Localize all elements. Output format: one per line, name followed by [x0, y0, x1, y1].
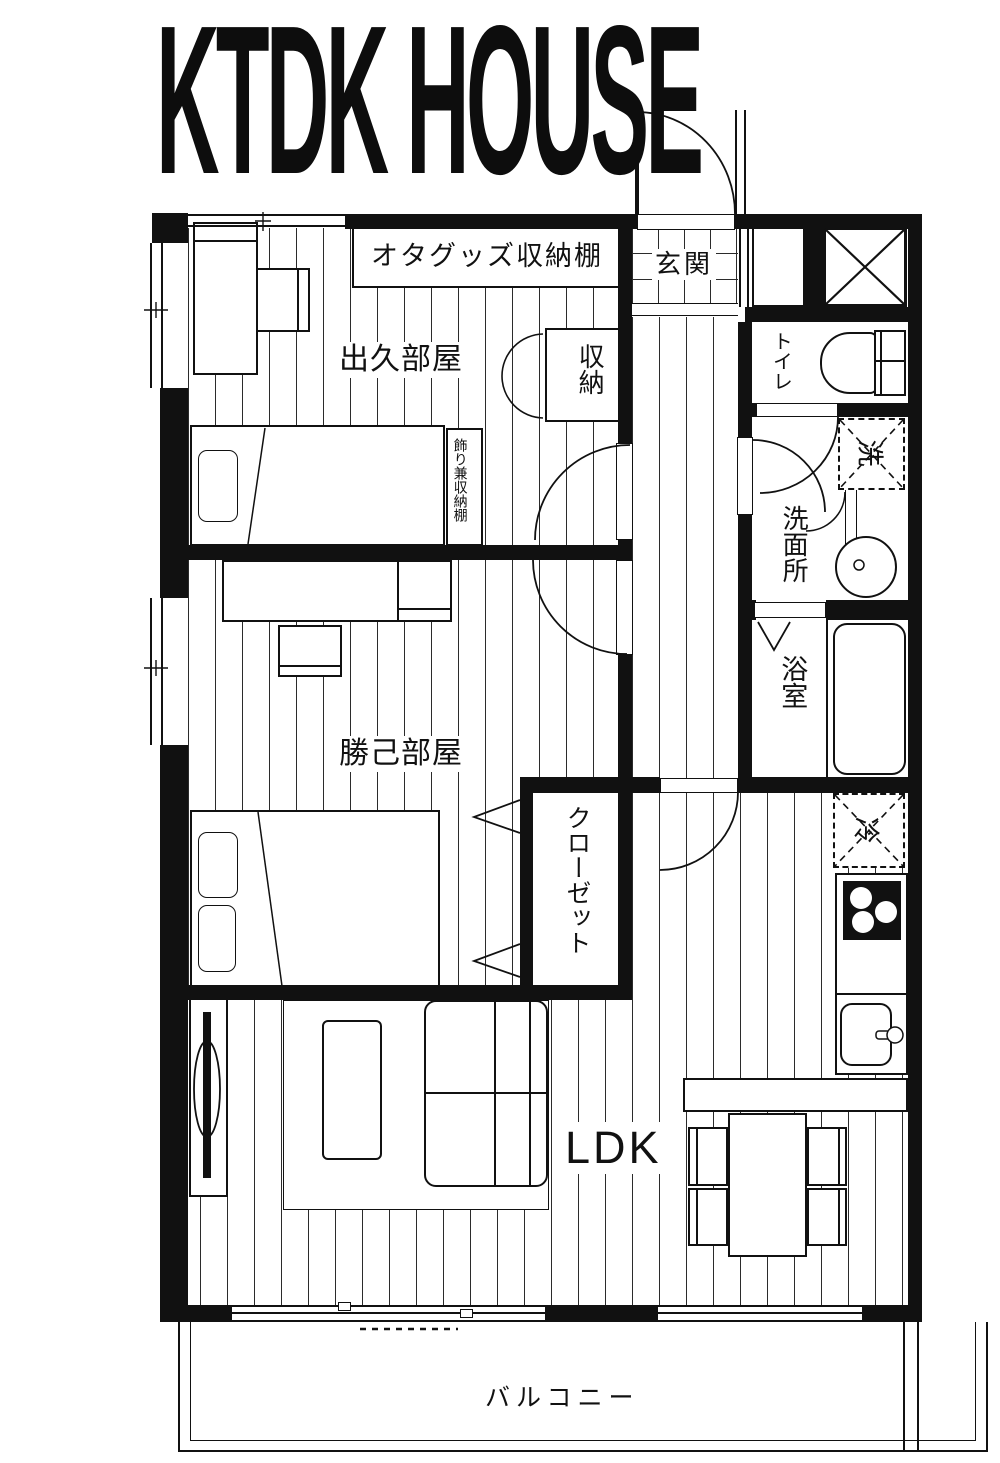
- katsuki-pillow-1: [198, 832, 238, 898]
- wall-closet-left: [520, 793, 533, 985]
- window-deku-line-1: [150, 243, 152, 388]
- washroom-door-arc: [753, 440, 825, 512]
- label-deku-room: 出久部屋: [336, 342, 466, 378]
- wall-toilet-div-r: [838, 403, 908, 417]
- window-top-line-2: [160, 225, 345, 227]
- chair-3-back: [838, 1129, 840, 1184]
- coffee-table: [322, 1020, 382, 1160]
- page-title: KTDK HOUSE: [156, 0, 700, 206]
- katsuki-desk-divider: [397, 562, 399, 620]
- sliding-right-mid-line: [658, 1312, 862, 1314]
- wall-katsuki-bottom: [160, 985, 632, 1000]
- hallway-floor: [632, 317, 738, 779]
- bath-divider: [826, 620, 828, 777]
- katsuki-desk: [222, 560, 452, 622]
- deku-desk-line: [195, 240, 256, 242]
- window-katsuki-line-1: [150, 598, 152, 745]
- wall-hall-a: [618, 228, 632, 445]
- dining-chair-4: [807, 1188, 847, 1246]
- label-washer: 洗: [854, 440, 884, 467]
- dining-table: [728, 1113, 807, 1257]
- wall-bottom-c: [862, 1305, 922, 1322]
- toilet-door-leaf: [756, 403, 838, 417]
- genkan-step: [632, 303, 738, 316]
- label-ota-shelf: オタグッズ収納棚: [368, 240, 606, 272]
- shaft-box: [823, 227, 907, 307]
- wall-toilet-div-l: [738, 403, 757, 417]
- wall-closet-top: [520, 777, 660, 793]
- wall-hall-c: [618, 650, 632, 1000]
- label-storage: 収納: [572, 342, 607, 396]
- label-katsuki-room: 勝己部屋: [336, 736, 466, 772]
- balcony-inner-rail: [190, 1322, 976, 1441]
- label-ldk: LDK: [562, 1122, 665, 1174]
- basin-drain: [854, 560, 864, 570]
- dining-chair-3: [807, 1127, 847, 1186]
- porch-wall-line-2: [744, 110, 746, 214]
- chair-4-back: [838, 1190, 840, 1244]
- wall-bath-left: [738, 620, 752, 777]
- window-deku-line-2: [161, 243, 163, 388]
- label-closet: クローゼット: [560, 804, 594, 956]
- toilet-tank-line-h: [876, 360, 904, 362]
- tv-stand: [189, 995, 228, 1197]
- shoe-cabinet: [752, 227, 805, 307]
- genkan-divider-line-1: [739, 229, 741, 307]
- katsuki-pillow-2: [198, 905, 236, 972]
- balcony-partition-1: [903, 1322, 905, 1450]
- toilet-tank: [874, 330, 906, 396]
- window-tick-deku: [144, 302, 168, 318]
- kitchen-peninsula: [683, 1078, 908, 1112]
- katsuki-desk-shelf-line: [399, 608, 450, 610]
- wall-toilet-top: [745, 307, 922, 322]
- chair-1-back: [696, 1129, 698, 1184]
- wall-top-right: [735, 214, 922, 229]
- ldk-door-leaf: [660, 778, 738, 793]
- label-bathroom: 浴室: [774, 654, 810, 710]
- porch-wall-line-1: [735, 110, 737, 214]
- dining-chair-1: [688, 1127, 728, 1186]
- sliding-handle-1: [338, 1302, 351, 1311]
- label-washroom: 洗面所: [776, 504, 811, 584]
- label-display-shelf: 飾り兼収納棚: [452, 438, 468, 522]
- counter-divider: [837, 993, 906, 995]
- wall-wash-left-a: [738, 322, 752, 437]
- wall-shaft-left: [805, 227, 823, 307]
- washer-hatch-arc: [806, 492, 845, 531]
- window-tick-katsuki: [144, 660, 168, 676]
- label-genkan: 玄関: [652, 249, 716, 280]
- bathtub: [833, 623, 906, 775]
- sofa-cushion-split: [426, 1092, 546, 1094]
- wall-bath-top-r: [826, 600, 922, 620]
- wall-left-b: [160, 745, 188, 1322]
- katsuki-chair-back: [280, 665, 340, 667]
- label-balcony: バルコニー: [482, 1383, 643, 1413]
- balcony-partition-2: [917, 1322, 919, 1450]
- wall-wash-left-b: [738, 514, 752, 602]
- kitchen-sink: [840, 1003, 892, 1066]
- deku-chair: [256, 268, 310, 332]
- deku-pillow: [198, 450, 238, 522]
- katsuki-chair: [278, 625, 342, 677]
- washroom-door-leaf: [737, 437, 753, 515]
- floor-plan: KTDK HOUSE: [0, 0, 1000, 1463]
- wall-hall-b: [618, 538, 632, 562]
- wall-bottom-a: [160, 1305, 232, 1322]
- toilet-door-arc: [760, 417, 838, 493]
- window-katsuki-line-2: [161, 598, 163, 745]
- washer-hatch-jamb: [845, 490, 857, 553]
- wall-bottom-b: [545, 1305, 658, 1322]
- toilet-bowl: [820, 332, 878, 394]
- sliding-handle-2: [460, 1309, 473, 1318]
- sliding-left-mid-line: [232, 1312, 545, 1314]
- wall-kitchen-top: [738, 777, 922, 793]
- genkan-divider-line-2: [747, 229, 749, 307]
- deku-door-leaf: [616, 443, 633, 540]
- toilet-tank-line-v: [880, 332, 882, 394]
- wall-right: [908, 228, 922, 1322]
- chair-2-back: [696, 1190, 698, 1244]
- katsuki-door-leaf: [616, 560, 633, 655]
- deku-desk: [193, 222, 258, 375]
- wall-left-a: [160, 388, 188, 598]
- label-fridge: 冷: [850, 817, 880, 844]
- dining-chair-2: [688, 1188, 728, 1246]
- deku-chair-back: [297, 270, 299, 330]
- bath-door-leaf: [754, 602, 826, 618]
- bath-door-v: [758, 622, 790, 650]
- wall-room-divider: [160, 545, 632, 560]
- label-toilet: トイレ: [766, 330, 794, 392]
